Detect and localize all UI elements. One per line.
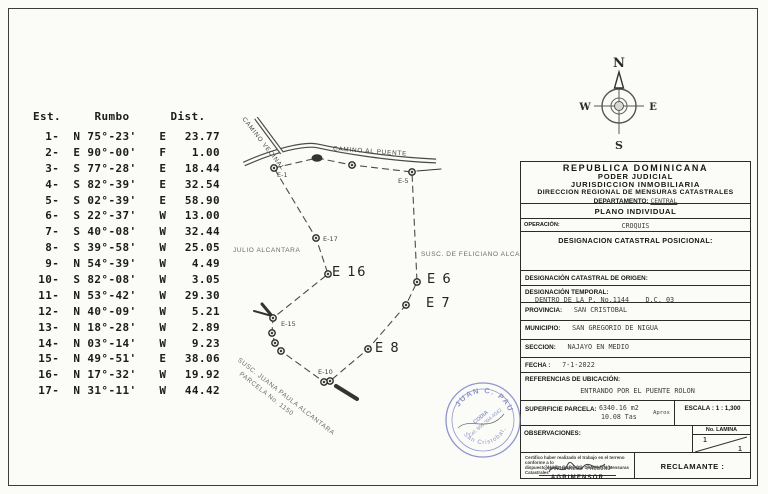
traverse-row: 8-S 39°-58'W25.05 <box>30 240 220 256</box>
traverse-rows: 1-N 75°-23'E23.772-E 90°-00'F1.003-S 77°… <box>30 129 220 399</box>
escala-label: ESCALA : <box>684 405 714 412</box>
traverse-row: 15-N 49°-51'E38.06 <box>30 351 220 367</box>
scanned-sheet: Est. Rumbo Dist. 1-N 75°-23'E23.772-E 90… <box>0 0 768 494</box>
col-header-est: Est. <box>30 110 64 123</box>
row-designacion-origen: DESIGNACIÓN CATASTRAL DE ORIGEN: <box>521 270 750 285</box>
traverse-row: 2-E 90°-00'F1.00 <box>30 145 220 161</box>
traverse-table-header: Est. Rumbo Dist. <box>30 110 220 123</box>
station-label: E 16 <box>332 265 367 280</box>
referencias-value: ENTRANDO POR EL PUENTE ROLON <box>525 387 750 395</box>
escala-value: 1 : 1,300 <box>716 405 741 412</box>
station-label: E-17 <box>323 235 338 243</box>
station-label: E-10 <box>318 368 333 376</box>
panel-header: REPUBLICA DOMINICANA PODER JUDICIAL JURI… <box>521 162 750 203</box>
row-label: PROVINCIA: <box>525 307 562 314</box>
info-panel: REPUBLICA DOMINICANA PODER JUDICIAL JURI… <box>520 161 751 479</box>
surveyor-stamp: JUAN C. PAULINO San Cristobal, R.D. CODI… <box>438 376 530 464</box>
row-value: 7-1-2022 <box>562 361 595 369</box>
plano-individual-title: PLANO INDIVIDUAL <box>521 203 750 218</box>
col-header-dist: Dist. <box>160 110 216 123</box>
row-designacion-temporal: DESIGNACIÓN TEMPORAL: DENTRO DE LA P. No… <box>521 285 750 302</box>
traverse-row: 12-N 40°-09'W5.21 <box>30 304 220 320</box>
row-municipio: MUNICIPIO: SAN GREGORIO DE NIGUA <box>521 320 750 339</box>
superficie-label: SUPERFICIE PARCELA: <box>525 406 597 413</box>
row-firmas: Certifico haber realizado el trabajo en … <box>521 452 750 478</box>
svg-text:JUAN C. PAULINO: JUAN C. PAULINO <box>438 376 516 413</box>
north-arrow-icon <box>615 72 624 88</box>
operacion-row: OPERACIÓN: CROQUIS <box>521 218 750 231</box>
row-label: MUNICIPIO: <box>525 325 560 332</box>
traverse-row: 11-N 53°-42'W29.30 <box>30 288 220 304</box>
lamina-number-top: 1 <box>703 436 707 444</box>
compass-rose: N W E S <box>570 50 670 160</box>
traverse-row: 13-N 18°-28'W2.89 <box>30 320 220 336</box>
header-line-4: DIRECCION REGIONAL DE MENSURAS CATASTRAL… <box>521 189 750 197</box>
traverse-row: 3-S 77°-28'E18.44 <box>30 161 220 177</box>
agrimensor-title: AGRIMENSOR <box>521 475 634 481</box>
row-referencias: REFERENCIAS DE UBICACIÓN: ENTRANDO POR E… <box>521 372 750 400</box>
row-label: DESIGNACIÓN CATASTRAL DE ORIGEN: <box>525 275 648 282</box>
lamina-box: 1 1 <box>693 435 750 453</box>
traverse-row: 6-S 22°-37'W13.00 <box>30 208 220 224</box>
traverse-row: 4-S 82°-39'E32.54 <box>30 177 220 193</box>
compass-n: N <box>613 56 625 71</box>
designacion-posicional: DESIGNACION CATASTRAL POSICIONAL: <box>521 231 750 270</box>
superficie-aprox: Aprox <box>653 410 670 416</box>
row-value: SAN GREGORIO DE NIGUA <box>572 324 658 332</box>
traverse-row: 1-N 75°-23'E23.77 <box>30 129 220 145</box>
traverse-row: 5-S 02°-39'E58.90 <box>30 193 220 209</box>
traverse-row: 14-N 03°-14'W9.23 <box>30 336 220 352</box>
operacion-value: CROQUIS <box>521 222 750 230</box>
row-value: NAJAYO EN MEDIO <box>568 343 629 351</box>
station-label: E 7 <box>426 296 451 311</box>
station-label: E-5 <box>398 177 409 185</box>
compass-w: W <box>578 102 591 113</box>
row-label: SECCION: <box>525 344 556 351</box>
row-value: SAN CRISTOBAL <box>574 306 627 314</box>
agrimensor-name: JUAN CARLOS PAULINO <box>521 466 634 472</box>
compass-s: S <box>615 139 623 152</box>
reclamante-label: RECLAMANTE : <box>635 462 750 471</box>
referencias-label: REFERENCIAS DE UBICACIÓN: <box>525 376 620 383</box>
superficie-tareas: 10.08 Tas <box>599 413 639 422</box>
superficie-m2: 6340.16 m2 <box>599 404 639 413</box>
owner-label-left: JULIO ALCANTARA <box>233 247 300 254</box>
row-fecha: FECHA : 7-1-2022 <box>521 357 750 372</box>
station-label: E-15 <box>281 320 296 328</box>
traverse-row: 16-N 17°-32'W19.92 <box>30 367 220 383</box>
row-seccion: SECCION: NAJAYO EN MEDIO <box>521 339 750 357</box>
traverse-row: 10-S 82°-08'W3.05 <box>30 272 220 288</box>
header-line-3: JURISDICCION INMOBILIARIA <box>521 181 750 189</box>
row-superficie: SUPERFICIE PARCELA: 6340.16 m2 10.08 Tas… <box>521 400 750 425</box>
lamina-label: No. LAMINA <box>693 426 750 435</box>
row-observaciones: OBSERVACIONES: No. LAMINA 1 1 <box>521 425 750 452</box>
station-label: E 8 <box>375 341 400 356</box>
col-header-rumbo: Rumbo <box>64 110 160 123</box>
station-label: E 6 <box>427 272 452 287</box>
traverse-table: Est. Rumbo Dist. 1-N 75°-23'E23.772-E 90… <box>30 110 220 399</box>
compass-e: E <box>649 102 657 113</box>
row-label: FECHA : <box>525 362 550 369</box>
traverse-row: 9-N 54°-39'W4.49 <box>30 256 220 272</box>
station-label: E-1 <box>277 171 288 179</box>
traverse-row: 17-N 31°-11'W44.42 <box>30 383 220 399</box>
row-label: DESIGNACIÓN TEMPORAL: <box>525 289 609 296</box>
observaciones-label: OBSERVACIONES: <box>524 430 581 437</box>
stamp-name: JUAN C. PAULINO <box>438 376 516 413</box>
row-provincia: PROVINCIA: SAN CRISTOBAL <box>521 302 750 320</box>
traverse-row: 7-S 40°-08'W32.44 <box>30 224 220 240</box>
